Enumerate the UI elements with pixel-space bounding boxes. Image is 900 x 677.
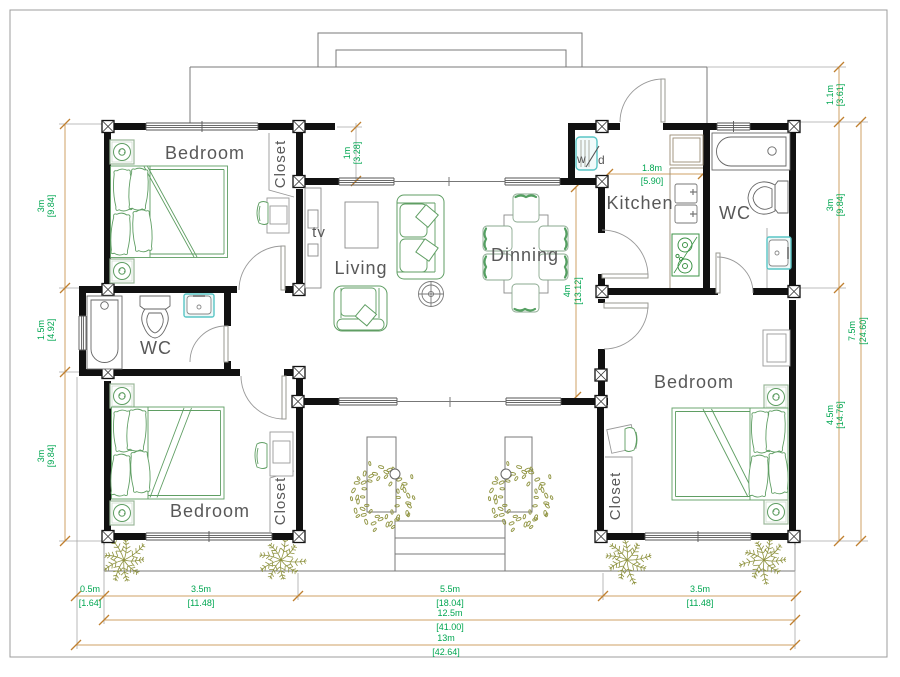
svg-text:1.5m: 1.5m [36,320,46,340]
svg-text:[24.60]: [24.60] [858,317,868,345]
svg-text:WC: WC [719,203,751,223]
svg-text:WC: WC [140,338,172,358]
svg-text:7.5m: 7.5m [847,321,857,341]
svg-text:3m: 3m [825,199,835,212]
svg-text:[13.12]: [13.12] [573,277,583,305]
svg-text:[42.64]: [42.64] [432,647,460,657]
svg-text:3m: 3m [36,450,46,463]
svg-text:1m: 1m [342,147,352,160]
svg-text:[11.48]: [11.48] [188,598,215,608]
svg-text:d: d [598,153,605,167]
svg-text:[3.28]: [3.28] [352,142,362,165]
svg-text:Bedroom: Bedroom [654,372,734,392]
svg-text:3.5m: 3.5m [191,584,211,594]
svg-text:[3.61]: [3.61] [835,84,845,107]
svg-text:[41.00]: [41.00] [436,622,464,632]
svg-text:3.5m: 3.5m [690,584,710,594]
svg-text:Closet: Closet [272,140,289,189]
svg-text:4.5m: 4.5m [825,405,835,425]
svg-text:1.8m: 1.8m [642,163,662,173]
svg-text:[18.04]: [18.04] [436,598,464,608]
svg-text:Closet: Closet [272,477,289,526]
svg-text:3m: 3m [36,200,46,213]
svg-text:0.5m: 0.5m [80,584,100,594]
svg-text:[9.84]: [9.84] [835,194,845,217]
svg-text:[5.90]: [5.90] [641,176,664,186]
svg-text:Bedroom: Bedroom [165,143,245,163]
svg-text:Bedroom: Bedroom [170,501,250,521]
svg-text:[11.48]: [11.48] [687,598,714,608]
svg-text:4m: 4m [562,285,572,298]
svg-text:[9.84]: [9.84] [46,195,56,218]
svg-text:Kitchen: Kitchen [606,193,673,213]
svg-text:12.5m: 12.5m [437,608,462,618]
svg-text:Closet: Closet [607,472,624,521]
svg-text:Living: Living [334,258,387,278]
svg-text:13m: 13m [437,633,455,643]
svg-text:[9.84]: [9.84] [46,445,56,468]
svg-text:5.5m: 5.5m [440,584,460,594]
svg-text:[14.76]: [14.76] [835,401,845,429]
svg-text:1.1m: 1.1m [825,85,835,105]
svg-text:[1.64]: [1.64] [79,598,102,608]
svg-text:tv: tv [312,224,326,241]
svg-text:Dinning: Dinning [491,245,559,265]
svg-text:[4.92]: [4.92] [46,319,56,342]
svg-text:w: w [576,152,586,166]
